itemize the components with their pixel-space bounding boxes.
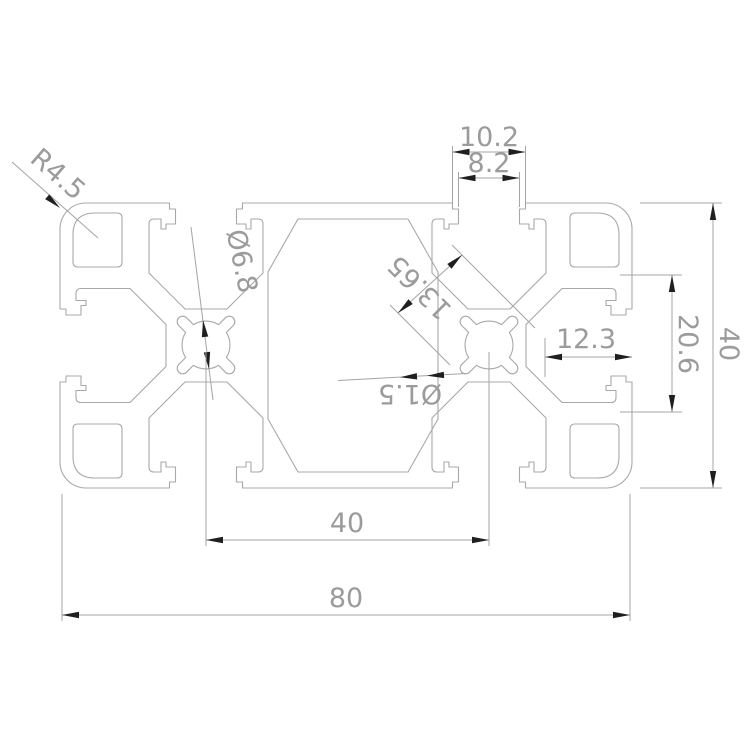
dim-label-slot-spacing: 40 — [330, 508, 364, 539]
profile-outer-boundary — [60, 203, 632, 488]
dim-boss-diagonal: 13.65 — [382, 245, 535, 365]
dim-side-slot-depth: 12.3 — [545, 324, 632, 377]
dim-label-boss-diagonal: 13.65 — [382, 249, 459, 326]
dim-label-corner-radius: R4.5 — [24, 143, 91, 207]
corner-cavity-top-right — [570, 213, 619, 267]
dim-label-top-slot-opening: 8.2 — [468, 148, 511, 179]
leader-arrow — [200, 320, 208, 338]
dim-corner-radius: R4.5 — [12, 143, 98, 238]
dim-slot-spacing: 40 — [206, 352, 489, 546]
corner-cavity-bottom-right — [570, 424, 619, 478]
leader-arrow — [427, 372, 444, 379]
profile-outline-group — [60, 203, 632, 488]
technical-drawing-canvas: 10.2 8.2 R4.5 Ø6.8 13.65 — [0, 0, 750, 750]
corner-cavity-bottom-left — [73, 424, 122, 478]
dim-label-center-hole: Ø6.8 — [219, 227, 263, 296]
extension-line — [452, 245, 535, 328]
dimensions-group: 10.2 8.2 R4.5 Ø6.8 13.65 — [12, 122, 744, 621]
corner-cavity-top-left — [73, 213, 122, 267]
dim-label-profile-height: 40 — [713, 327, 744, 361]
leader-arrow — [204, 352, 212, 370]
dim-label-profile-width: 80 — [329, 583, 363, 614]
dim-center-hole: Ø6.8 — [191, 227, 263, 400]
dim-label-side-slot-depth: 12.3 — [556, 324, 616, 355]
dim-top-slot-opening: 8.2 — [459, 148, 520, 207]
extrusion-profile-drawing: 10.2 8.2 R4.5 Ø6.8 13.65 — [0, 0, 750, 750]
dim-label-lobe-slot: Ø1.5 — [378, 378, 442, 409]
leader-line — [191, 227, 213, 400]
central-cavity — [268, 219, 438, 472]
dim-label-side-inner-height: 20.6 — [672, 314, 703, 374]
